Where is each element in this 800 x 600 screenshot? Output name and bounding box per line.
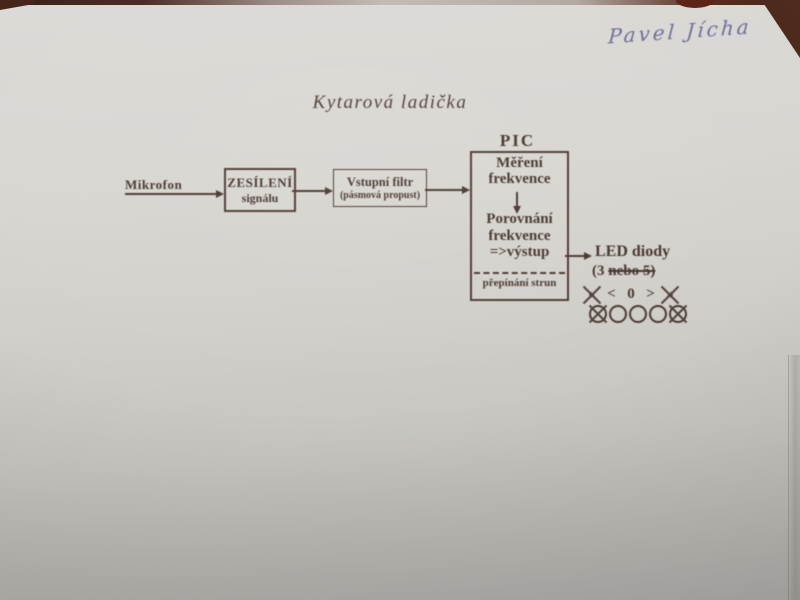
photographed-paper: Pavel Jícha Kytarová ladička Mikrofon ZE… [0,0,800,600]
pic-footer-label: přepínání strun [472,277,567,289]
symbol-center-zero: 0 [625,286,637,303]
symbol-right: > [645,286,657,303]
arrowhead-mikrofon-to-amp [216,190,224,198]
pic-block: Měření frekvence Porovnání frekvence =>v… [470,151,569,301]
pic-dashed-separator [474,272,565,274]
amplifier-line2: signálu [242,191,279,206]
microphone-label: Mikrofon [125,177,182,193]
arrowhead-measure-to-compare [513,206,521,214]
arrow-amp-to-filter [292,190,326,192]
pic-step2: Porovnání frekvence =>výstup [486,211,552,261]
page-content: Pavel Jícha Kytarová ladička Mikrofon ZE… [0,0,800,600]
led-circle-row [589,305,687,323]
input-filter-block: Vstupní filtr (pásmová propust) [333,169,427,207]
handwritten-author-name: Pavel Jícha [607,11,793,48]
led-count-struck: nebo 5) [608,263,655,279]
pic-step2-line3: =>výstup [486,244,552,261]
led-direction-symbols: « < 0 > » [586,286,676,303]
filter-line2: (pásmová propust) [340,190,420,201]
symbol-far-right-crossed: » [664,286,676,303]
led-circle [629,305,647,323]
led-count-label: (3 nebo 5) [592,263,655,280]
led-circle-crossed [589,305,607,323]
amplifier-line1: ZESÍLENÍ [227,175,292,191]
symbol-left: < [606,286,618,303]
pic-step2-line2: frekvence [486,228,552,245]
led-circle [649,305,667,323]
pic-step1: Měření frekvence [488,155,550,187]
arrowhead-pic-to-led [584,252,592,260]
pic-step1-line2: frekvence [488,171,550,187]
arrow-measure-to-compare [516,192,518,206]
led-circle [609,305,627,323]
arrow-filter-to-pic [425,189,463,191]
arrow-mikrofon-to-amp [125,193,217,195]
arrowhead-filter-to-pic [462,186,470,194]
pic-label: PIC [470,131,565,151]
led-count-prefix: (3 [592,263,608,279]
filter-line1: Vstupní filtr [347,175,413,190]
led-title: LED diody [595,243,670,261]
led-circle-crossed [669,305,687,323]
symbol-far-left-crossed: « [586,286,598,303]
pic-step1-line1: Měření [488,155,550,171]
arrow-pic-to-led [565,255,585,257]
amplifier-block: ZESÍLENÍ signálu [224,168,296,212]
page-title: Kytarová ladička [250,92,530,114]
arrowhead-amp-to-filter [325,187,333,195]
